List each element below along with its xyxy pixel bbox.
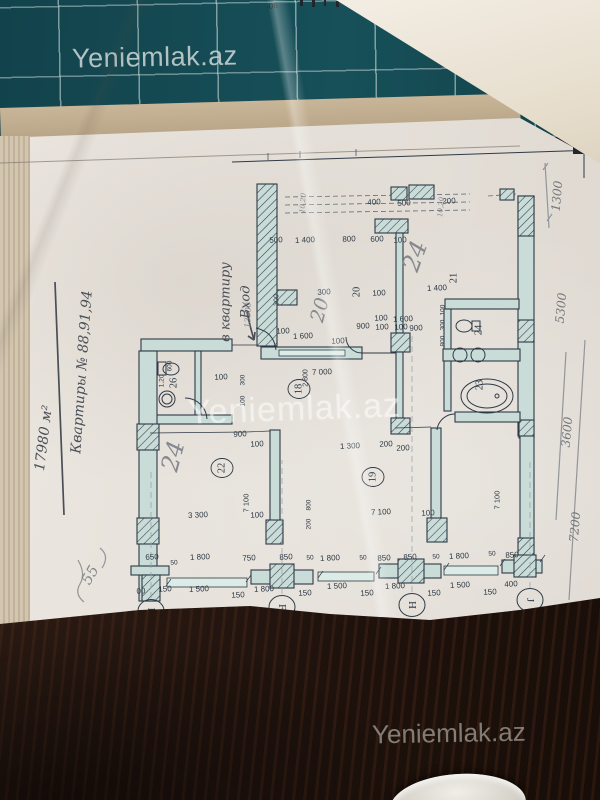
dimension-labels-item: 800 (440, 335, 447, 346)
dimension-labels-item: 150 (360, 588, 374, 598)
dimension-labels-item: 850 (279, 552, 293, 562)
dimension-labels-item: 150 (298, 588, 312, 598)
margin-dimensions-item: 7200 (567, 511, 584, 543)
dimension-labels-item: 300 (240, 374, 247, 385)
room-number-labels-item: 19 (368, 472, 379, 483)
dimension-labels-item: 100 (440, 304, 447, 315)
dimension-labels-item: 650 (145, 552, 159, 562)
dimension-labels-item: 1 800 (190, 552, 211, 562)
dimension-labels-item: 100 (250, 510, 264, 520)
dimension-labels-item: 300 (317, 287, 331, 297)
dimension-labels-item: 200 (306, 518, 313, 529)
dimension-labels-item: 100 (394, 322, 408, 332)
dimension-labels-item: 3 300 (188, 510, 209, 520)
dimension-labels-item: 50 (359, 554, 367, 561)
dimension-labels-item: 100 (372, 288, 386, 298)
margin-dimensions-item: 3600 (559, 416, 576, 448)
dimension-labels-item: 1 500 (450, 580, 471, 590)
dimension-labels-item: 400 (367, 197, 381, 207)
room-number-labels-item: 22 (217, 463, 228, 474)
dimension-labels-item: 1 800 (449, 551, 470, 561)
dimension-labels-item: 400 (504, 579, 518, 589)
dimension-labels-item: 100 (421, 508, 435, 518)
dimension-labels-item: 100 (250, 439, 264, 449)
dimension-labels-item: 1 500 (327, 581, 348, 591)
mat-code: ·06 (266, 1, 279, 11)
dimension-labels-item: 850 (505, 550, 519, 560)
dimension-labels-item: 50 (432, 553, 440, 560)
dimension-labels-item: 100 (276, 326, 290, 336)
dimension-labels-item: 1,20 (159, 374, 166, 387)
dimension-labels-item: 7 100 (371, 507, 392, 517)
dimension-labels-item: 7 100 (493, 491, 502, 510)
dimension-labels-item: 1 300 (340, 441, 361, 451)
photo-of-floor-plan: Yeniemlak.az ·06 (0, 0, 600, 800)
pencil-annotations-item: 10,20 (298, 192, 308, 213)
dimension-labels-item: 50 (306, 554, 314, 561)
dimension-labels-item: 1 600 (293, 331, 314, 341)
dimension-labels-item: 150 (231, 590, 245, 600)
room-number-labels-item: 21 (449, 273, 460, 284)
dimension-labels-item: 750 (242, 553, 256, 563)
pencil-annotations-item: 20 (306, 295, 334, 325)
watermark-bottom: Yeniemlak.az (372, 717, 526, 751)
dimension-labels-item: 50 (170, 559, 178, 566)
handwritten-notes-item: в квартиру (219, 262, 234, 342)
dimension-labels-item: 150 (158, 584, 172, 594)
margin-dimensions-item: 1300 (549, 180, 566, 212)
dimension-labels-item: 1 800 (254, 584, 275, 594)
dimension-labels-item: 100 (214, 372, 228, 382)
dimension-labels-item: 1 400 (295, 235, 316, 245)
dimension-labels-item: 00 (136, 586, 146, 595)
dimension-labels-item: 100 (375, 322, 389, 332)
dimension-labels-item: 850 (377, 553, 391, 563)
watermark-center: Yeniemlak.az (187, 386, 401, 432)
pencil-annotations-item: 24 (155, 438, 190, 476)
dimension-labels-item: 1 400 (427, 283, 448, 293)
handwritten-notes-item: Вход (239, 286, 254, 320)
room-number-labels-item: 23 (475, 380, 486, 391)
dimension-labels-item: 1 800 (320, 553, 341, 563)
dimension-labels-item: 1 500 (189, 584, 210, 594)
dimension-labels-item: 50 (488, 550, 496, 557)
handwritten-notes-item: 17980 м² (32, 404, 56, 472)
note-underline (55, 282, 64, 515)
dimension-labels-item: 800 (306, 499, 313, 510)
dimension-labels-item: 200 (379, 439, 393, 449)
room-number-labels-item: 26 (169, 378, 180, 389)
mat-scale-ticks (300, 0, 339, 7)
room-number-labels-item: 20 (352, 287, 363, 298)
dimension-labels-item: 500 (397, 198, 411, 208)
margin-dimensions-item: 5300 (553, 292, 570, 324)
axis-bubbles-item: J (524, 598, 536, 603)
room-number-labels-item: 24 (474, 324, 485, 335)
axis-bubbles-item: H (406, 601, 418, 609)
dimension-labels-item: 150 (427, 588, 441, 598)
dimension-labels-item: 7 100 (242, 494, 251, 513)
dimension-labels-item: 150 (483, 587, 497, 597)
page-edge-line (0, 146, 520, 163)
dimension-labels-item: 300 (274, 294, 281, 306)
dimension-labels-item: 900 (356, 321, 370, 331)
mat-code-item: ·06 (266, 1, 279, 11)
dimension-labels-item: 900 (409, 323, 423, 333)
handwritten-notes-item: Квартиры № 88,91,94 (68, 290, 95, 455)
dimension-labels-item: 100 (331, 336, 345, 346)
dimension-labels-item: 800 (342, 234, 356, 244)
plan-walls (131, 144, 596, 601)
dimension-labels-item: 600 (370, 234, 384, 244)
pencil-annotations-item: 10,20 (436, 196, 446, 217)
dimension-labels-item: 500 (269, 235, 283, 245)
dimension-labels-item: 200 (396, 443, 410, 453)
dimension-labels-item: 600 (167, 360, 174, 371)
dimension-labels-item: 300 (440, 319, 447, 330)
dimension-labels-item: 850 (403, 552, 417, 562)
dimension-labels-item: 7 000 (312, 367, 333, 377)
dimension-labels-item: 1 800 (385, 581, 406, 591)
